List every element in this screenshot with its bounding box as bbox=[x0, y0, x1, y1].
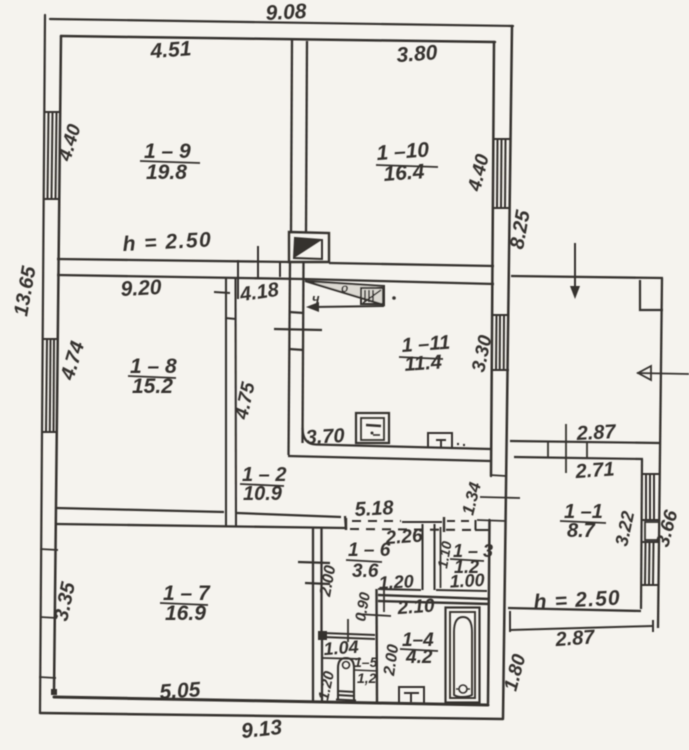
svg-text:9.08: 9.08 bbox=[265, 0, 307, 25]
svg-text:2.10: 2.10 bbox=[396, 595, 436, 619]
svg-text:15.2: 15.2 bbox=[132, 375, 173, 398]
svg-text:5.18: 5.18 bbox=[354, 497, 395, 521]
svg-text:10.9: 10.9 bbox=[243, 483, 283, 505]
svg-text:16.9: 16.9 bbox=[165, 602, 206, 625]
svg-text:9.13: 9.13 bbox=[240, 716, 283, 743]
svg-text:1 – 9: 1 – 9 bbox=[144, 140, 191, 163]
svg-text:8.7: 8.7 bbox=[567, 520, 596, 542]
svg-text:1–5: 1–5 bbox=[354, 654, 378, 670]
svg-text:1.00: 1.00 bbox=[449, 570, 485, 592]
svg-text:19.8: 19.8 bbox=[146, 161, 187, 184]
svg-text:16.4: 16.4 bbox=[383, 160, 426, 186]
svg-text:4.2: 4.2 bbox=[405, 647, 433, 668]
svg-text:1.20: 1.20 bbox=[378, 571, 414, 593]
svg-text:4.51: 4.51 bbox=[149, 37, 192, 63]
svg-text:o: o bbox=[341, 281, 348, 295]
svg-text:11.4: 11.4 bbox=[404, 351, 443, 376]
svg-text:1 – 6: 1 – 6 bbox=[348, 540, 391, 561]
svg-text:1,2: 1,2 bbox=[357, 670, 377, 686]
svg-text:3.6: 3.6 bbox=[352, 561, 379, 582]
svg-text:3.80: 3.80 bbox=[396, 41, 439, 67]
svg-text:2.87: 2.87 bbox=[575, 421, 617, 445]
svg-text:h = 2.50: h = 2.50 bbox=[533, 587, 621, 615]
svg-text:2.71: 2.71 bbox=[574, 458, 615, 483]
svg-text:ч: ч bbox=[312, 291, 320, 306]
svg-text:3.70: 3.70 bbox=[305, 425, 345, 449]
svg-text:5.05: 5.05 bbox=[159, 678, 202, 704]
svg-text:9.20: 9.20 bbox=[120, 276, 162, 301]
svg-text:h = 2.50: h = 2.50 bbox=[122, 228, 213, 256]
svg-text:2.87: 2.87 bbox=[554, 626, 596, 651]
